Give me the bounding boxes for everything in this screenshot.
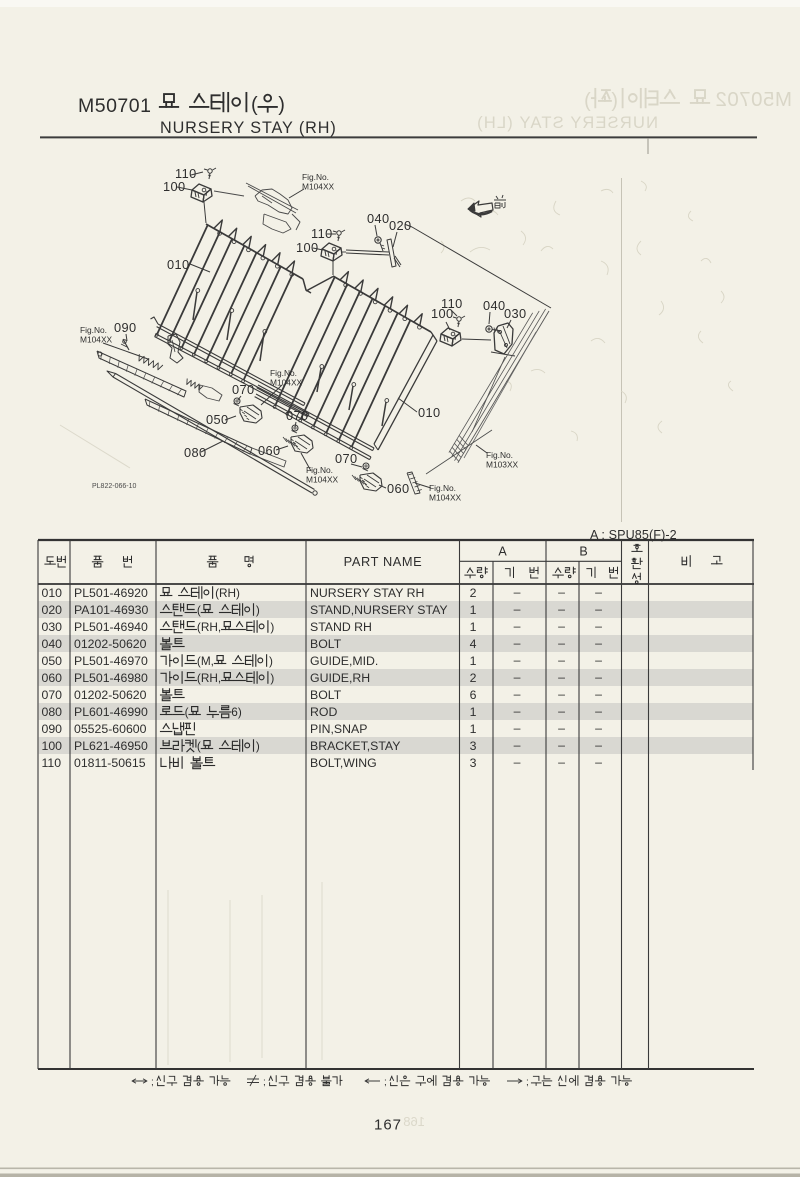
svg-text:010: 010 (42, 586, 63, 600)
svg-text:020: 020 (42, 603, 63, 617)
svg-text:–: – (514, 653, 521, 667)
svg-text:080: 080 (184, 445, 207, 460)
svg-text:NURSERY STAY RH: NURSERY STAY RH (310, 586, 424, 600)
svg-text:ROD: ROD (310, 705, 337, 719)
svg-text:020: 020 (389, 218, 412, 233)
svg-text:–: – (595, 619, 602, 633)
svg-text:–: – (558, 738, 565, 752)
svg-text:Fig.No.: Fig.No. (429, 483, 456, 493)
svg-text:STAND RH: STAND RH (310, 620, 372, 634)
svg-text:–: – (558, 585, 565, 599)
svg-text:PL501-46920: PL501-46920 (74, 586, 148, 600)
svg-text:): ) (584, 90, 591, 112)
svg-text:Fig.No.: Fig.No. (270, 368, 297, 378)
svg-text:3: 3 (470, 739, 477, 753)
svg-text:M104XX: M104XX (306, 475, 339, 485)
svg-text:–: – (595, 602, 602, 616)
svg-text:;: ; (526, 1077, 529, 1088)
svg-text:M50702: M50702 (715, 88, 792, 111)
svg-text:): ) (256, 739, 260, 753)
svg-text:–: – (558, 636, 565, 650)
svg-text:01202-50620: 01202-50620 (74, 637, 147, 651)
svg-text:–: – (595, 687, 602, 701)
svg-text:070: 070 (335, 451, 358, 466)
svg-text:110: 110 (42, 756, 62, 770)
svg-text:PL621-46950: PL621-46950 (74, 739, 148, 753)
svg-text:1: 1 (470, 654, 477, 668)
svg-text:1: 1 (470, 705, 477, 719)
svg-text:2: 2 (470, 671, 477, 685)
svg-text:167: 167 (374, 1117, 402, 1134)
svg-text:030: 030 (504, 306, 527, 321)
svg-text:168: 168 (403, 1114, 425, 1129)
svg-text:;: ; (263, 1077, 266, 1088)
svg-text:–: – (558, 619, 565, 633)
svg-text:1: 1 (470, 722, 477, 736)
svg-text:060: 060 (258, 443, 281, 458)
svg-text:Fig.No.: Fig.No. (80, 325, 107, 335)
svg-text:6): 6) (231, 705, 242, 719)
svg-text:070: 070 (42, 688, 63, 702)
svg-text:GUIDE,RH: GUIDE,RH (310, 671, 370, 685)
svg-text:NURSERY STAY (LH): NURSERY STAY (LH) (476, 114, 658, 132)
svg-text:–: – (595, 704, 602, 718)
svg-text:060: 060 (42, 671, 63, 685)
svg-text:100: 100 (431, 306, 454, 321)
svg-text:050: 050 (42, 654, 63, 668)
svg-text:): ) (256, 603, 260, 617)
svg-text:M103XX: M103XX (486, 460, 519, 470)
svg-text:(: ( (197, 603, 201, 617)
svg-text:M104XX: M104XX (429, 493, 462, 503)
svg-text:(: ( (611, 90, 618, 112)
svg-text:100: 100 (296, 240, 319, 255)
svg-text:–: – (595, 738, 602, 752)
svg-text:–: – (558, 704, 565, 718)
svg-text:(RH,: (RH, (197, 671, 221, 685)
svg-text:PART NAME: PART NAME (344, 554, 423, 569)
svg-text:Fig.No.: Fig.No. (302, 172, 329, 182)
svg-text:–: – (514, 636, 521, 650)
svg-text:030: 030 (42, 620, 63, 634)
svg-text:BRACKET,STAY: BRACKET,STAY (310, 739, 400, 753)
svg-text:–: – (558, 755, 565, 769)
svg-text:(: ( (251, 94, 258, 116)
svg-text:01202-50620: 01202-50620 (74, 688, 147, 702)
svg-text:–: – (595, 636, 602, 650)
svg-text:;: ; (384, 1077, 387, 1088)
svg-text:1: 1 (470, 603, 477, 617)
svg-text:–: – (514, 738, 521, 752)
svg-text:): ) (270, 671, 274, 685)
svg-text:GUIDE,MID.: GUIDE,MID. (310, 654, 378, 668)
svg-text:BOLT: BOLT (310, 688, 342, 702)
svg-text:040: 040 (367, 211, 390, 226)
svg-text:–: – (595, 670, 602, 684)
svg-text:PL501-46980: PL501-46980 (74, 671, 148, 685)
svg-text:090: 090 (42, 722, 63, 736)
svg-text:010: 010 (167, 257, 190, 272)
svg-text:–: – (595, 585, 602, 599)
svg-text:): ) (269, 654, 273, 668)
svg-text:): ) (270, 620, 274, 634)
svg-text:(RH,: (RH, (197, 620, 221, 634)
svg-text:100: 100 (163, 179, 186, 194)
svg-text:100: 100 (42, 739, 63, 753)
svg-text:NURSERY STAY (RH): NURSERY STAY (RH) (160, 119, 337, 137)
svg-text:M104XX: M104XX (270, 378, 303, 388)
svg-text:(M,: (M, (197, 654, 214, 668)
svg-text:040: 040 (483, 298, 506, 313)
svg-text:–: – (558, 653, 565, 667)
svg-text:M50701: M50701 (78, 95, 151, 117)
svg-text:040: 040 (42, 637, 63, 651)
svg-text:(: ( (185, 705, 189, 719)
svg-text:–: – (595, 755, 602, 769)
svg-text:070: 070 (232, 382, 255, 397)
svg-text:A: A (498, 545, 507, 559)
svg-text:–: – (514, 585, 521, 599)
svg-text:PIN,SNAP: PIN,SNAP (310, 722, 367, 736)
svg-text:PL601-46990: PL601-46990 (74, 705, 148, 719)
svg-text:080: 080 (42, 705, 63, 719)
svg-text:–: – (558, 721, 565, 735)
svg-text:;: ; (151, 1077, 154, 1088)
svg-text:Fig.No.: Fig.No. (486, 450, 513, 460)
svg-text:PL501-46970: PL501-46970 (74, 654, 148, 668)
svg-text:–: – (514, 755, 521, 769)
svg-text:M104XX: M104XX (302, 182, 335, 192)
svg-text:6: 6 (470, 688, 477, 702)
svg-text:–: – (558, 602, 565, 616)
svg-text:STAND,NURSERY STAY: STAND,NURSERY STAY (310, 603, 448, 617)
svg-text:–: – (595, 721, 602, 735)
svg-text:PA101-46930: PA101-46930 (74, 603, 148, 617)
svg-text:–: – (514, 670, 521, 684)
svg-text:070: 070 (286, 408, 309, 423)
svg-text:05525-60600: 05525-60600 (74, 722, 147, 736)
svg-text:–: – (595, 653, 602, 667)
svg-text:060: 060 (387, 481, 410, 496)
svg-text:BOLT: BOLT (310, 637, 342, 651)
svg-text:2: 2 (470, 586, 477, 600)
svg-text:(RH): (RH) (215, 586, 240, 600)
svg-text:090: 090 (114, 320, 137, 335)
svg-text:1: 1 (470, 620, 477, 634)
svg-text:B: B (579, 545, 587, 559)
svg-text:BOLT,WING: BOLT,WING (310, 756, 377, 770)
svg-text:3: 3 (470, 756, 477, 770)
svg-text:–: – (514, 704, 521, 718)
svg-text:M104XX: M104XX (80, 335, 113, 345)
svg-text:PL501-46940: PL501-46940 (74, 620, 148, 634)
svg-text:–: – (558, 670, 565, 684)
svg-text:(: ( (197, 739, 201, 753)
svg-text:–: – (514, 619, 521, 633)
svg-text:01811-50615: 01811-50615 (74, 756, 146, 770)
svg-text:010: 010 (418, 405, 441, 420)
svg-text:–: – (514, 602, 521, 616)
svg-text:PL822-066-10: PL822-066-10 (92, 483, 136, 490)
svg-text:): ) (278, 94, 285, 116)
svg-text:–: – (514, 687, 521, 701)
svg-text:–: – (514, 721, 521, 735)
svg-text:–: – (558, 687, 565, 701)
svg-text:4: 4 (470, 637, 477, 651)
